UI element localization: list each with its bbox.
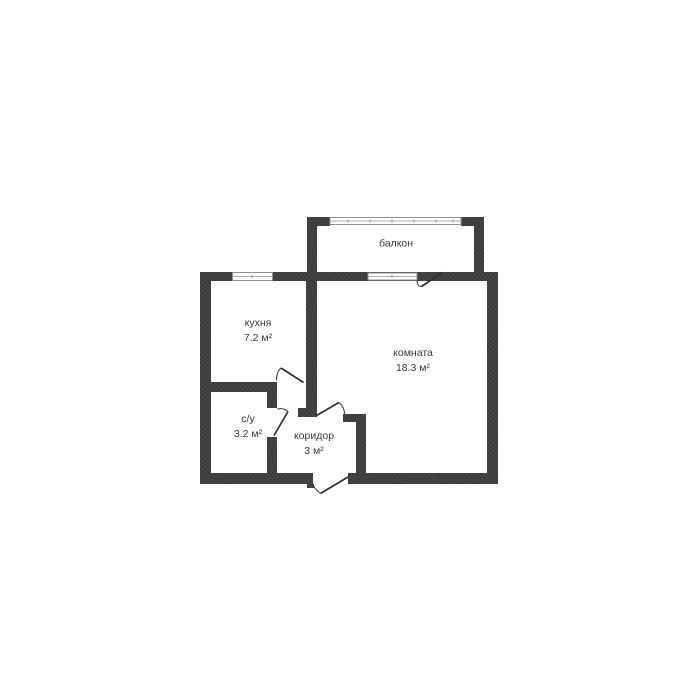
wall-balcony-corner-left [307,217,330,226]
entrance-jamb-nub [307,484,314,488]
wall-outer-top [200,272,498,281]
plan-linework [0,0,700,700]
room-label-kitchen: кухня 7.2 м² [244,316,272,346]
room-name: коридор [294,429,334,444]
room-name: кухня [244,316,272,331]
room-label-corridor: коридор 3 м² [294,429,334,459]
room-door [317,403,345,416]
wall-kitchen-room-divider [306,281,317,417]
room-name: балкон [379,237,413,252]
room-area: 3.2 м² [234,427,262,442]
room-area: 7.2 м² [244,331,272,346]
entrance-door [313,477,348,494]
floor-plan: балкон кухня 7.2 м² комната 18.3 м² с/у … [0,0,700,700]
room-name: комната [393,346,433,361]
wall-outer-left [200,272,211,484]
room-area: 18.3 м² [393,361,433,376]
wall-bath-divider-upper [267,382,277,408]
room-label-bathroom: с/у 3.2 м² [234,412,262,442]
wall-corridor-room [356,414,366,473]
wall-divider-foot [298,408,306,417]
bathroom-door [274,409,288,436]
wall-bath-divider-lower [267,437,277,473]
room-label-balcony: балкон [379,237,413,252]
wall-outer-bottom-right [348,473,498,484]
kitchen-door [277,368,304,383]
wall-outer-right [487,272,498,484]
room-label-room: комната 18.3 м² [393,346,433,376]
room-name: с/у [234,412,262,427]
balcony-window [330,218,461,225]
room-area: 3 м² [294,444,334,459]
wall-outer-bottom-left [200,473,313,484]
wall-balcony-corner-right [461,217,484,226]
